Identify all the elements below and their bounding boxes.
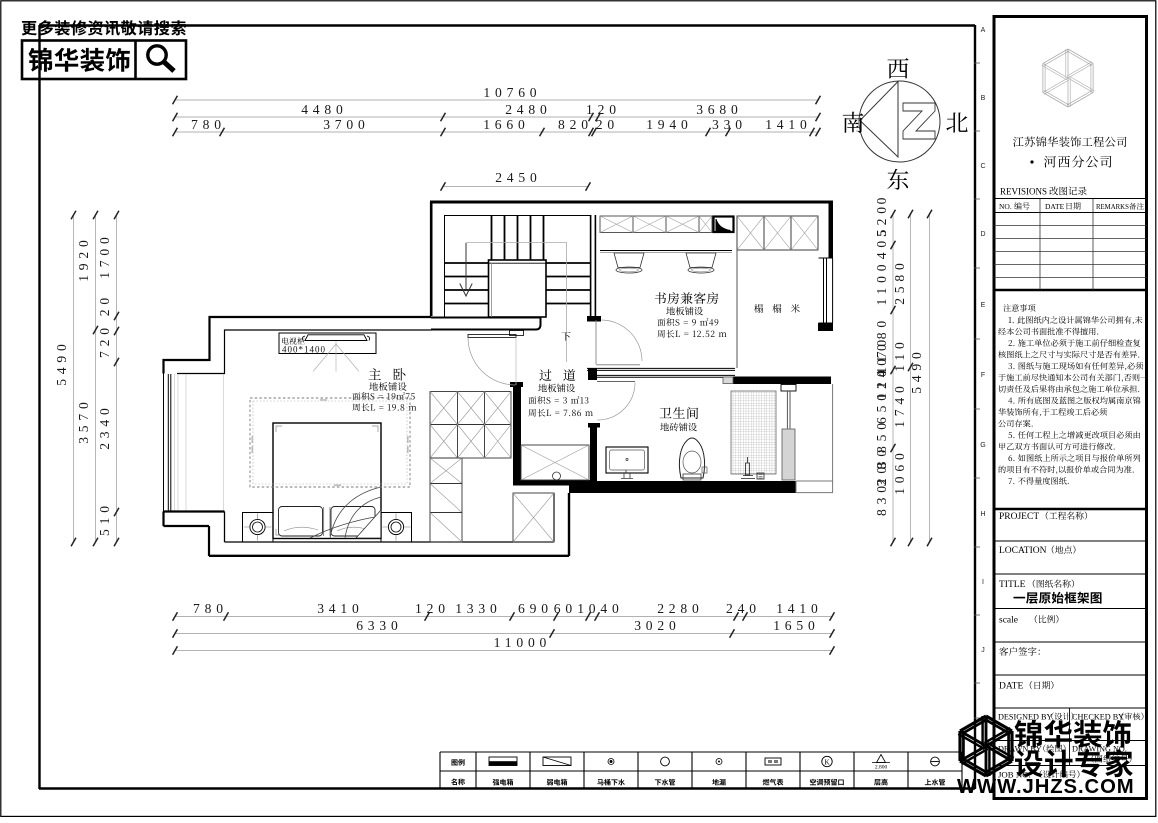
svg-text:400*1400: 400*1400: [282, 345, 326, 355]
svg-text:720: 720: [97, 323, 112, 358]
svg-text:2280: 2280: [657, 601, 703, 616]
svg-text:40: 40: [874, 236, 889, 259]
svg-text:H: H: [980, 511, 985, 518]
svg-text:1060: 1060: [892, 448, 907, 494]
svg-text:1940: 1940: [646, 117, 692, 132]
svg-text:C: C: [980, 163, 985, 170]
svg-text:120: 120: [586, 102, 621, 117]
svg-text:3700: 3700: [323, 117, 369, 132]
svg-text:330: 330: [712, 117, 747, 132]
svg-text:1040: 1040: [577, 601, 623, 616]
svg-text:D: D: [980, 231, 985, 238]
svg-text:510: 510: [97, 501, 112, 536]
svg-text:2480: 2480: [505, 102, 551, 117]
svg-text:DATE: DATE: [1045, 202, 1065, 211]
svg-text:10760: 10760: [483, 85, 541, 100]
svg-text:3020: 3020: [634, 618, 680, 633]
svg-text:4480: 4480: [301, 102, 347, 117]
svg-text:DATE: DATE: [999, 682, 1023, 692]
svg-text:3680: 3680: [696, 102, 742, 117]
svg-text:240: 240: [726, 601, 761, 616]
svg-text:1100: 1100: [874, 260, 889, 306]
svg-text:J: J: [981, 647, 985, 654]
svg-text:I: I: [982, 579, 984, 586]
svg-text:5: 5: [874, 225, 889, 237]
svg-text:WWW.JHZS.COM: WWW.JHZS.COM: [957, 776, 1135, 798]
svg-text:LOCATION: LOCATION: [999, 546, 1047, 556]
svg-text:690: 690: [518, 601, 553, 616]
svg-text:1700: 1700: [97, 232, 112, 278]
svg-text:110: 110: [892, 337, 907, 371]
svg-text:3410: 3410: [317, 601, 363, 616]
svg-text:1410: 1410: [776, 601, 822, 616]
svg-text:scale: scale: [999, 616, 1018, 626]
svg-text:F: F: [981, 372, 985, 379]
svg-text:820: 820: [558, 117, 593, 132]
svg-text:1660: 1660: [483, 117, 529, 132]
svg-text:5490: 5490: [909, 347, 924, 393]
svg-text:NO.: NO.: [999, 202, 1012, 211]
svg-text:1920: 1920: [76, 235, 91, 281]
svg-text:6330: 6330: [356, 618, 402, 633]
svg-text:780: 780: [193, 601, 228, 616]
svg-text:G: G: [980, 442, 985, 449]
svg-text:5490: 5490: [54, 339, 69, 385]
svg-text:A: A: [981, 27, 986, 34]
svg-text:830: 830: [874, 481, 889, 516]
svg-text:2.800: 2.800: [875, 765, 888, 771]
svg-text:60: 60: [554, 601, 577, 616]
svg-text:3570: 3570: [76, 397, 91, 443]
svg-text:2340: 2340: [97, 403, 112, 449]
svg-text:PROJECT: PROJECT: [999, 512, 1039, 522]
svg-text:2450: 2450: [495, 170, 541, 185]
svg-text:DESIGNED BY: DESIGNED BY: [998, 713, 1052, 722]
svg-text:CHECKED BY: CHECKED BY: [1072, 713, 1124, 722]
svg-text:2580: 2580: [892, 258, 907, 304]
svg-text:B: B: [981, 95, 986, 102]
svg-text:11000: 11000: [494, 635, 551, 650]
svg-text:E: E: [981, 302, 986, 309]
svg-text:TITLE: TITLE: [999, 580, 1026, 590]
svg-text:1740: 1740: [892, 381, 907, 427]
svg-text:780: 780: [191, 117, 226, 132]
svg-text:K: K: [824, 759, 829, 767]
svg-text:REVISIONS: REVISIONS: [1000, 187, 1047, 197]
svg-text:1410: 1410: [765, 117, 811, 132]
svg-text:20: 20: [596, 117, 619, 132]
svg-text:REMARKS: REMARKS: [1096, 204, 1129, 211]
svg-text:120: 120: [415, 601, 450, 616]
svg-text:20: 20: [97, 293, 112, 316]
svg-text:1330: 1330: [455, 601, 501, 616]
svg-text:1650: 1650: [773, 618, 819, 633]
